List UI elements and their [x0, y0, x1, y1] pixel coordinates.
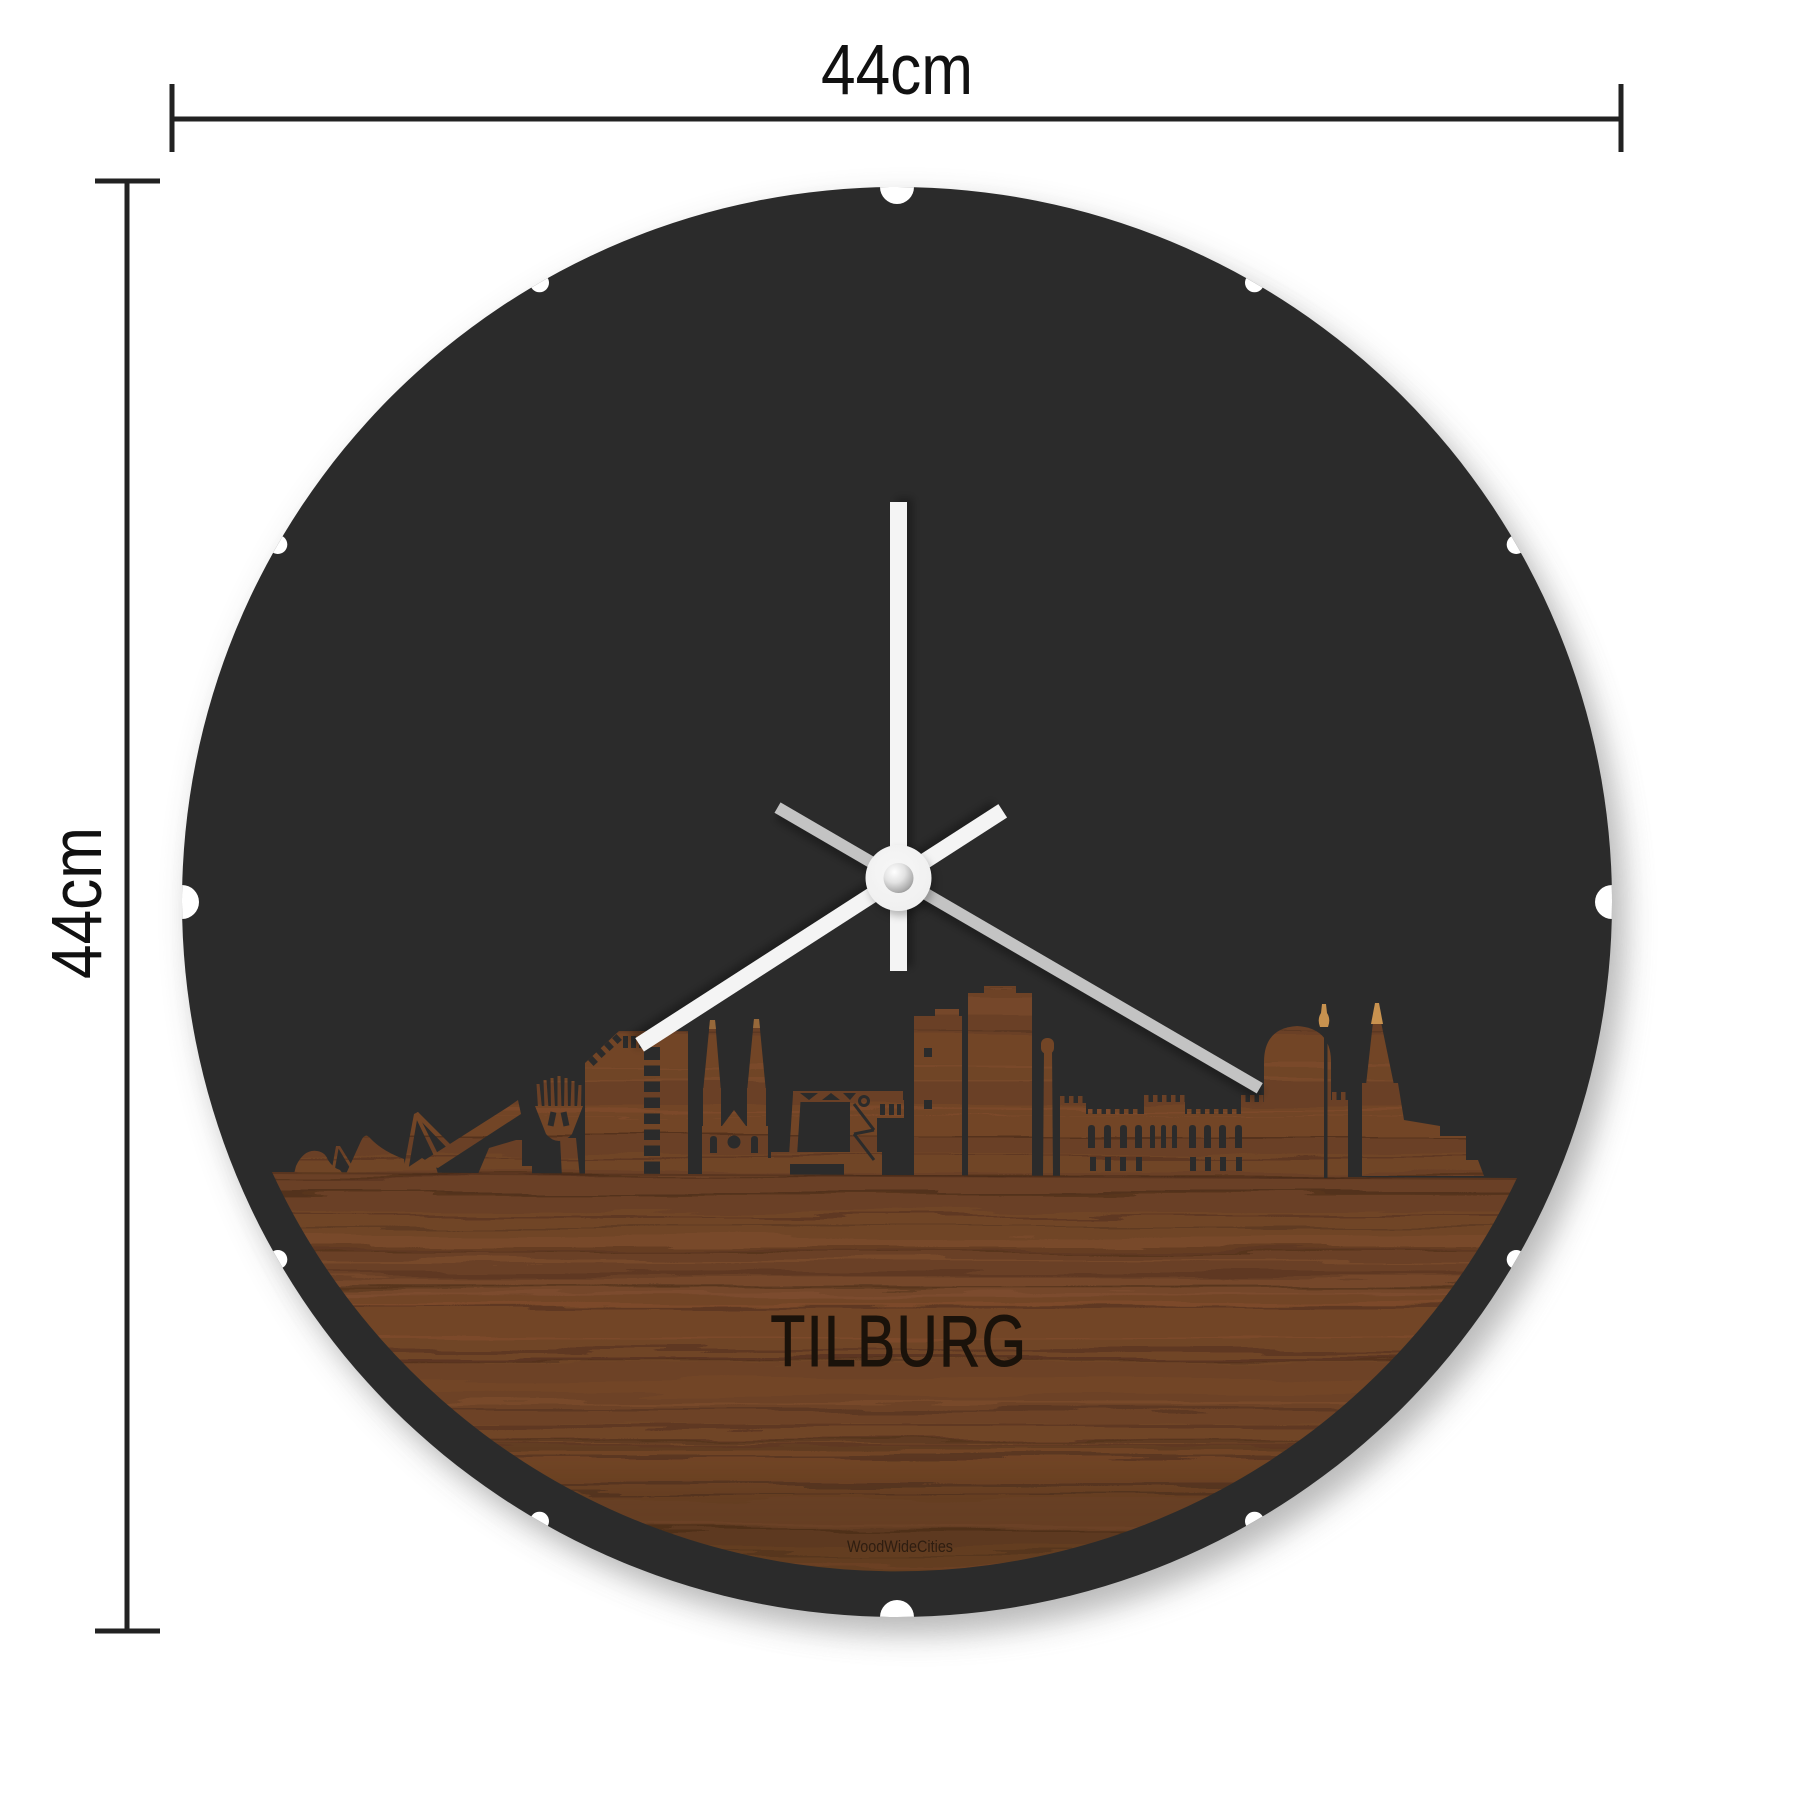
- svg-text:44cm: 44cm: [821, 31, 973, 110]
- svg-text:WoodWideCities: WoodWideCities: [847, 1538, 953, 1556]
- svg-text:TILBURG: TILBURG: [771, 1302, 1028, 1382]
- svg-text:44cm: 44cm: [38, 827, 117, 979]
